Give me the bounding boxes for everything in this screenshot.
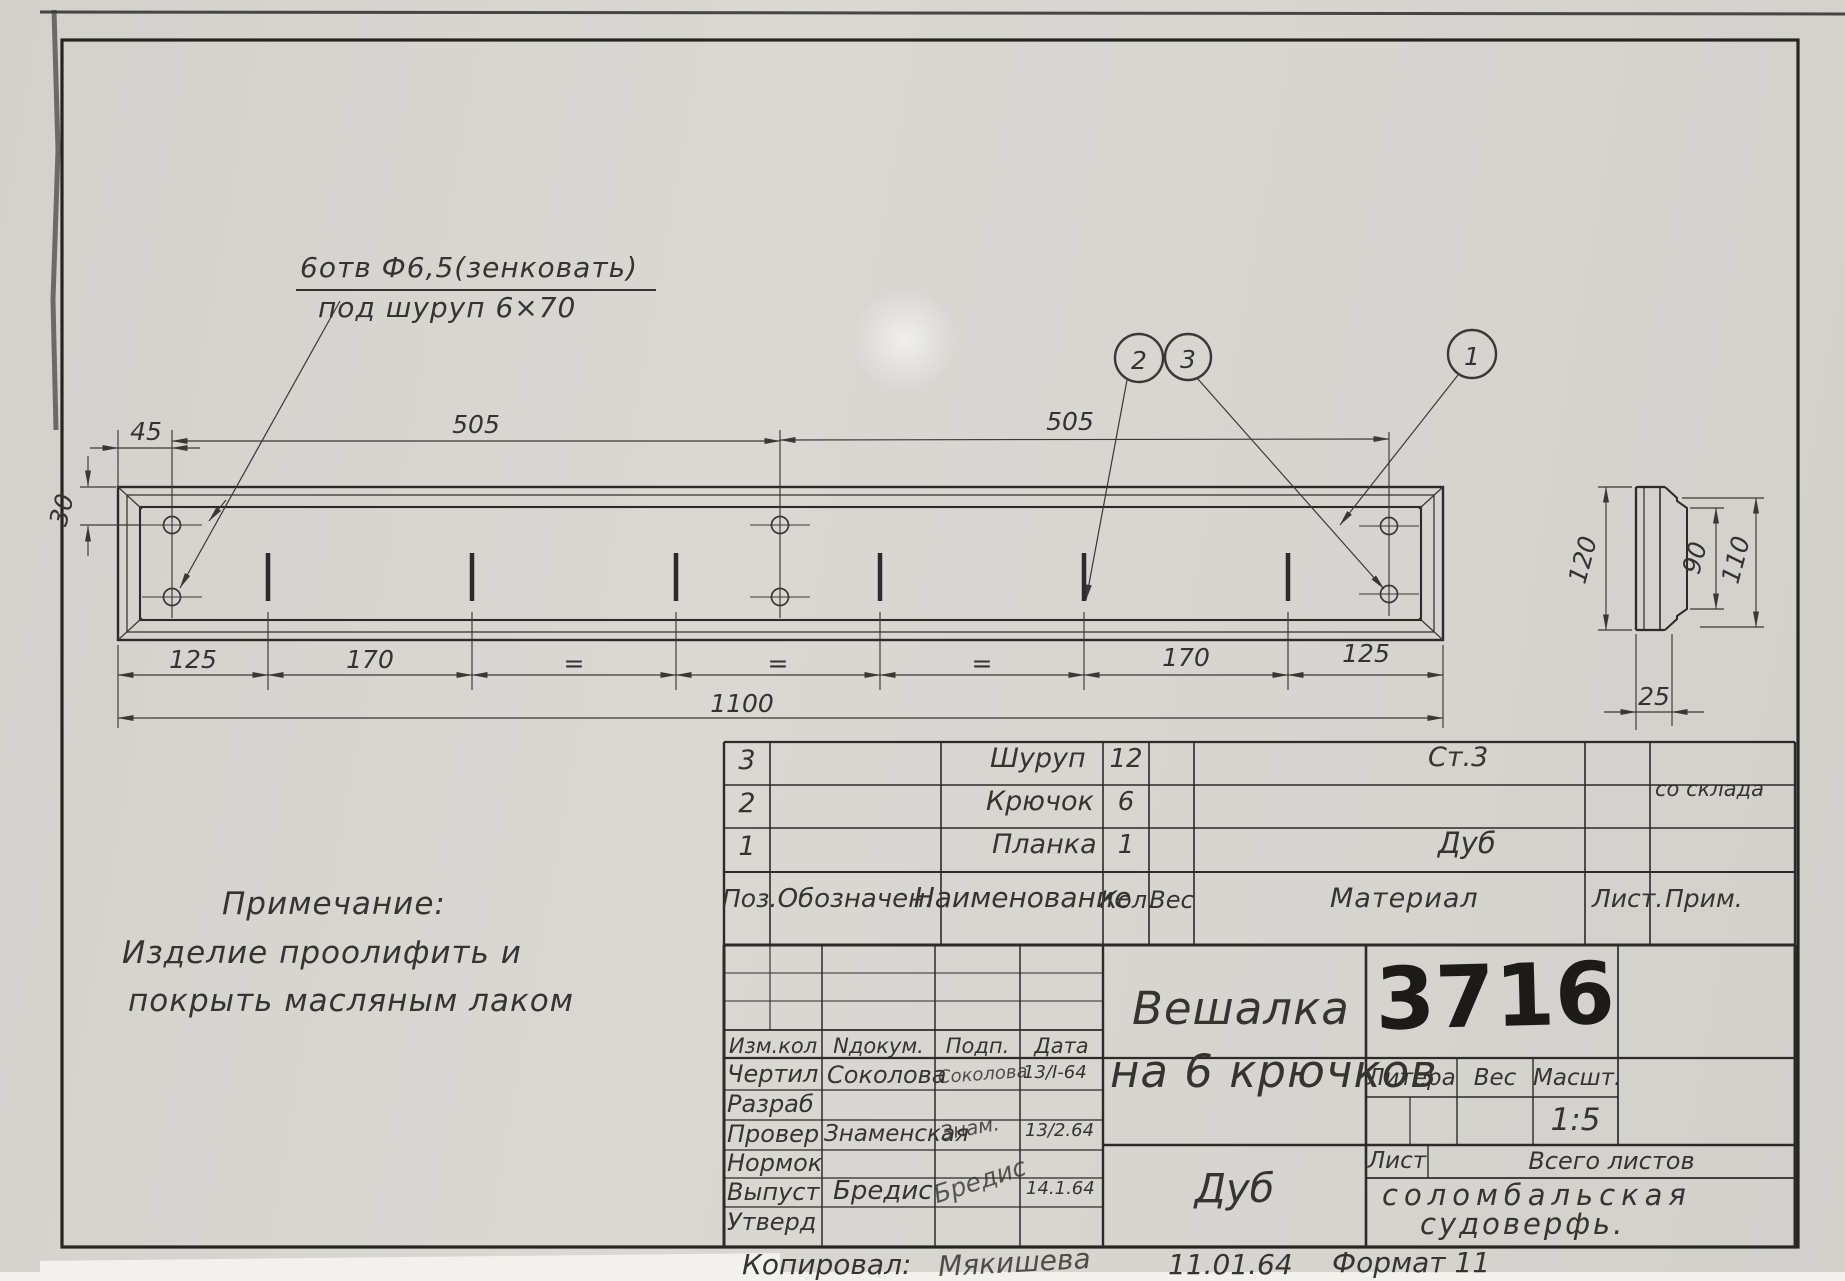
- org-name-line1: соломбальская: [1382, 1180, 1692, 1210]
- part-row-name: Планка: [992, 831, 1097, 859]
- part-row-pos: 2: [724, 790, 770, 818]
- dim-90: 90: [1677, 539, 1713, 577]
- list-header: Лист: [1366, 1149, 1428, 1173]
- sign-role: Разраб: [727, 1092, 814, 1117]
- dim-170-right: 170: [1162, 643, 1210, 672]
- dim-25: 25: [1638, 682, 1670, 711]
- note-line2: покрыть масляным лаком: [128, 985, 574, 1018]
- rev-header-ndok: Nдокум.: [822, 1035, 935, 1057]
- drawing-sheet: 45 505 505 30 125 170 = = = 170 125 1100…: [0, 0, 1845, 1281]
- dim-125-right: 125: [1342, 639, 1390, 668]
- scale-value: 1:5: [1533, 1104, 1618, 1137]
- sign-date: 14.1.64: [1026, 1180, 1095, 1199]
- rev-header-podp: Подп.: [935, 1035, 1020, 1057]
- part-row-qty: 6: [1103, 789, 1149, 816]
- vsego-header: Всего листов: [1428, 1149, 1795, 1174]
- parts-header-qty: Кол.: [1100, 888, 1150, 913]
- parts-header-material: Материал: [1330, 885, 1479, 913]
- callout-leaders: [180, 301, 1458, 600]
- callout-balloons: [1115, 330, 1496, 382]
- callout-2: 2: [1131, 346, 1147, 375]
- dim-110: 110: [1716, 533, 1756, 587]
- ves-header: Вес: [1457, 1066, 1533, 1090]
- rev-header-izm: Изм.кол: [724, 1035, 822, 1057]
- note-line1: Изделие проолифить и: [122, 937, 522, 970]
- note-title: Примечание:: [222, 888, 446, 921]
- dimension-labels: 45 505 505 30 125 170 = = = 170 125 1100…: [44, 407, 1756, 718]
- sign-role: Нормок: [727, 1151, 822, 1176]
- material-field: Дуб: [1103, 1168, 1366, 1210]
- part-row-pos: 1: [724, 833, 770, 861]
- paper-stain: [855, 290, 955, 390]
- callout-1: 1: [1464, 342, 1480, 371]
- hole-annotation-line1: 6отв Ф6,5(зенковать): [300, 253, 638, 282]
- footer-date: 11.01.64: [1168, 1250, 1293, 1279]
- dim-eq-2: =: [768, 649, 789, 678]
- masht-header: Масшт.: [1533, 1066, 1618, 1090]
- scan-bottom-edge: [0, 1272, 1845, 1281]
- dim-120: 120: [1563, 533, 1603, 587]
- parts-header-note: Прим.: [1665, 886, 1743, 912]
- callout-3: 3: [1180, 345, 1196, 374]
- sign-role: Чертил: [727, 1062, 818, 1087]
- dim-eq-1: =: [564, 649, 585, 678]
- parts-header-sheet: Лист.: [1592, 886, 1663, 912]
- litera-header: Литера: [1366, 1066, 1457, 1090]
- dim-1100: 1100: [710, 689, 774, 718]
- part-row-name: Крючок: [986, 788, 1094, 816]
- sign-name: Бредис: [833, 1178, 933, 1205]
- part-row-note: со склада: [1655, 779, 1770, 800]
- parts-header-pos: Поз.: [722, 886, 772, 912]
- dim-125-left: 125: [169, 645, 217, 674]
- callout-numbers: 2 3 1: [1131, 342, 1480, 375]
- part-row-material: Дуб: [1438, 828, 1496, 858]
- part-row-qty: 1: [1103, 832, 1149, 859]
- sign-date: 13/2.64: [1025, 1122, 1094, 1141]
- hole-annotation-line2: под шуруп 6×70: [318, 293, 576, 322]
- org-name-line2: судоверфь.: [1420, 1209, 1625, 1239]
- part-row-name: Шуруп: [990, 745, 1086, 773]
- part-row-pos: 3: [724, 747, 770, 775]
- dim-505-left: 505: [452, 410, 500, 439]
- drawing-title-line1: Вешалка: [1132, 985, 1350, 1032]
- parts-table-lines: [724, 742, 1795, 945]
- parts-header-weight: Вес: [1147, 888, 1196, 913]
- rev-header-data: Дата: [1020, 1035, 1103, 1057]
- dim-45: 45: [130, 417, 162, 446]
- sign-role: Провер: [727, 1122, 819, 1147]
- sign-role: Выпуст: [727, 1180, 819, 1205]
- front-view-dimensions: [80, 430, 1443, 728]
- footer-copied-signature: Мякишева: [937, 1244, 1091, 1281]
- part-row-qty: 12: [1103, 746, 1149, 773]
- footer-copied-label: Копировал:: [742, 1250, 911, 1279]
- sign-date: 13/I-64: [1023, 1064, 1087, 1083]
- sign-name: Соколова: [827, 1063, 947, 1088]
- part-row-material: Ст.3: [1428, 744, 1488, 772]
- dim-eq-3: =: [972, 649, 993, 678]
- hook-ticks: [268, 553, 1288, 601]
- dim-170-left: 170: [346, 645, 394, 674]
- footer-format: Формат 11: [1332, 1248, 1490, 1277]
- section-dimensions: [1598, 487, 1764, 730]
- sign-role: Утверд: [727, 1210, 816, 1235]
- drawing-number: 3716: [1371, 949, 1619, 1046]
- dim-30: 30: [44, 491, 80, 529]
- dim-505-right: 505: [1046, 407, 1094, 436]
